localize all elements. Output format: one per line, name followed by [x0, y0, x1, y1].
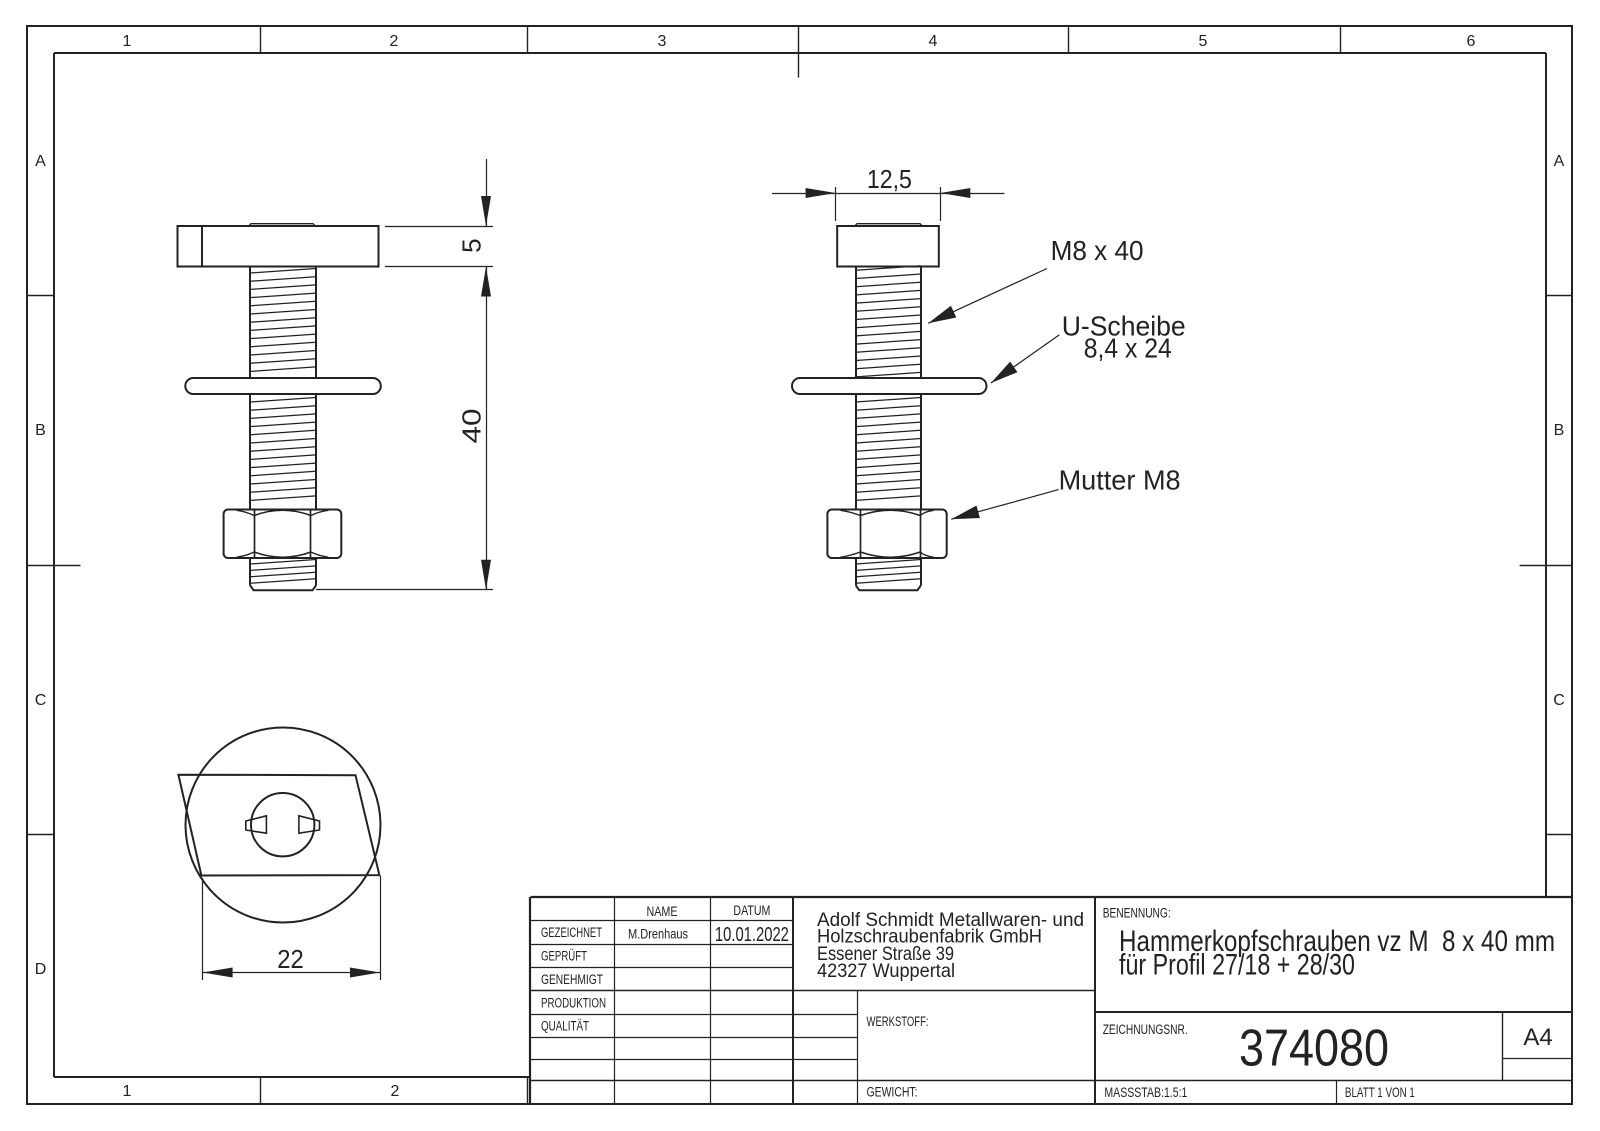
svg-text:BLATT 1 VON 1: BLATT 1 VON 1 [1345, 1084, 1415, 1100]
svg-text:B: B [1554, 422, 1565, 439]
svg-text:C: C [1553, 692, 1565, 709]
svg-text:5: 5 [457, 238, 487, 252]
svg-text:GEZEICHNET: GEZEICHNET [541, 925, 602, 940]
svg-text:DATUM: DATUM [733, 903, 770, 918]
svg-text:GEPRÜFT: GEPRÜFT [541, 949, 587, 964]
svg-text:A: A [1554, 153, 1565, 170]
svg-text:2: 2 [391, 1083, 400, 1100]
svg-text:M8 x 40: M8 x 40 [1051, 235, 1144, 266]
svg-text:42327 Wuppertal: 42327 Wuppertal [817, 961, 955, 982]
svg-text:40: 40 [457, 409, 487, 444]
svg-text:B: B [35, 422, 46, 439]
svg-text:M.Drenhaus: M.Drenhaus [628, 926, 688, 942]
svg-text:6: 6 [1467, 33, 1476, 50]
svg-text:QUALITÄT: QUALITÄT [541, 1019, 589, 1034]
svg-text:Mutter M8: Mutter M8 [1059, 464, 1181, 495]
svg-text:10.01.2022: 10.01.2022 [715, 924, 789, 946]
svg-text:für Profil 27/18 + 28/30: für Profil 27/18 + 28/30 [1119, 949, 1355, 982]
svg-text:22: 22 [277, 944, 304, 974]
svg-text:A4: A4 [1523, 1024, 1552, 1051]
svg-text:C: C [35, 692, 47, 709]
svg-text:2: 2 [390, 33, 399, 50]
svg-text:GEWICHT:: GEWICHT: [867, 1085, 918, 1100]
svg-text:4: 4 [929, 33, 938, 50]
svg-text:5: 5 [1199, 33, 1208, 50]
svg-text:A: A [35, 153, 46, 170]
svg-text:ZEICHNUNGSNR.: ZEICHNUNGSNR. [1103, 1022, 1188, 1037]
svg-text:12,5: 12,5 [867, 164, 912, 194]
svg-text:1: 1 [123, 33, 132, 50]
svg-text:1: 1 [123, 1083, 132, 1100]
svg-text:WERKSTOFF:: WERKSTOFF: [867, 1014, 929, 1029]
svg-text:NAME: NAME [647, 904, 678, 919]
svg-text:GENEHMIGT: GENEHMIGT [541, 972, 603, 987]
svg-text:374080: 374080 [1239, 1020, 1389, 1078]
svg-text:PRODUKTION: PRODUKTION [541, 996, 606, 1011]
svg-text:3: 3 [658, 33, 667, 50]
svg-text:8,4 x 24: 8,4 x 24 [1084, 333, 1172, 364]
svg-text:D: D [35, 961, 47, 978]
svg-text:MASSSTAB:1.5:1: MASSSTAB:1.5:1 [1104, 1084, 1187, 1100]
svg-text:BENENNUNG:: BENENNUNG: [1103, 906, 1171, 921]
